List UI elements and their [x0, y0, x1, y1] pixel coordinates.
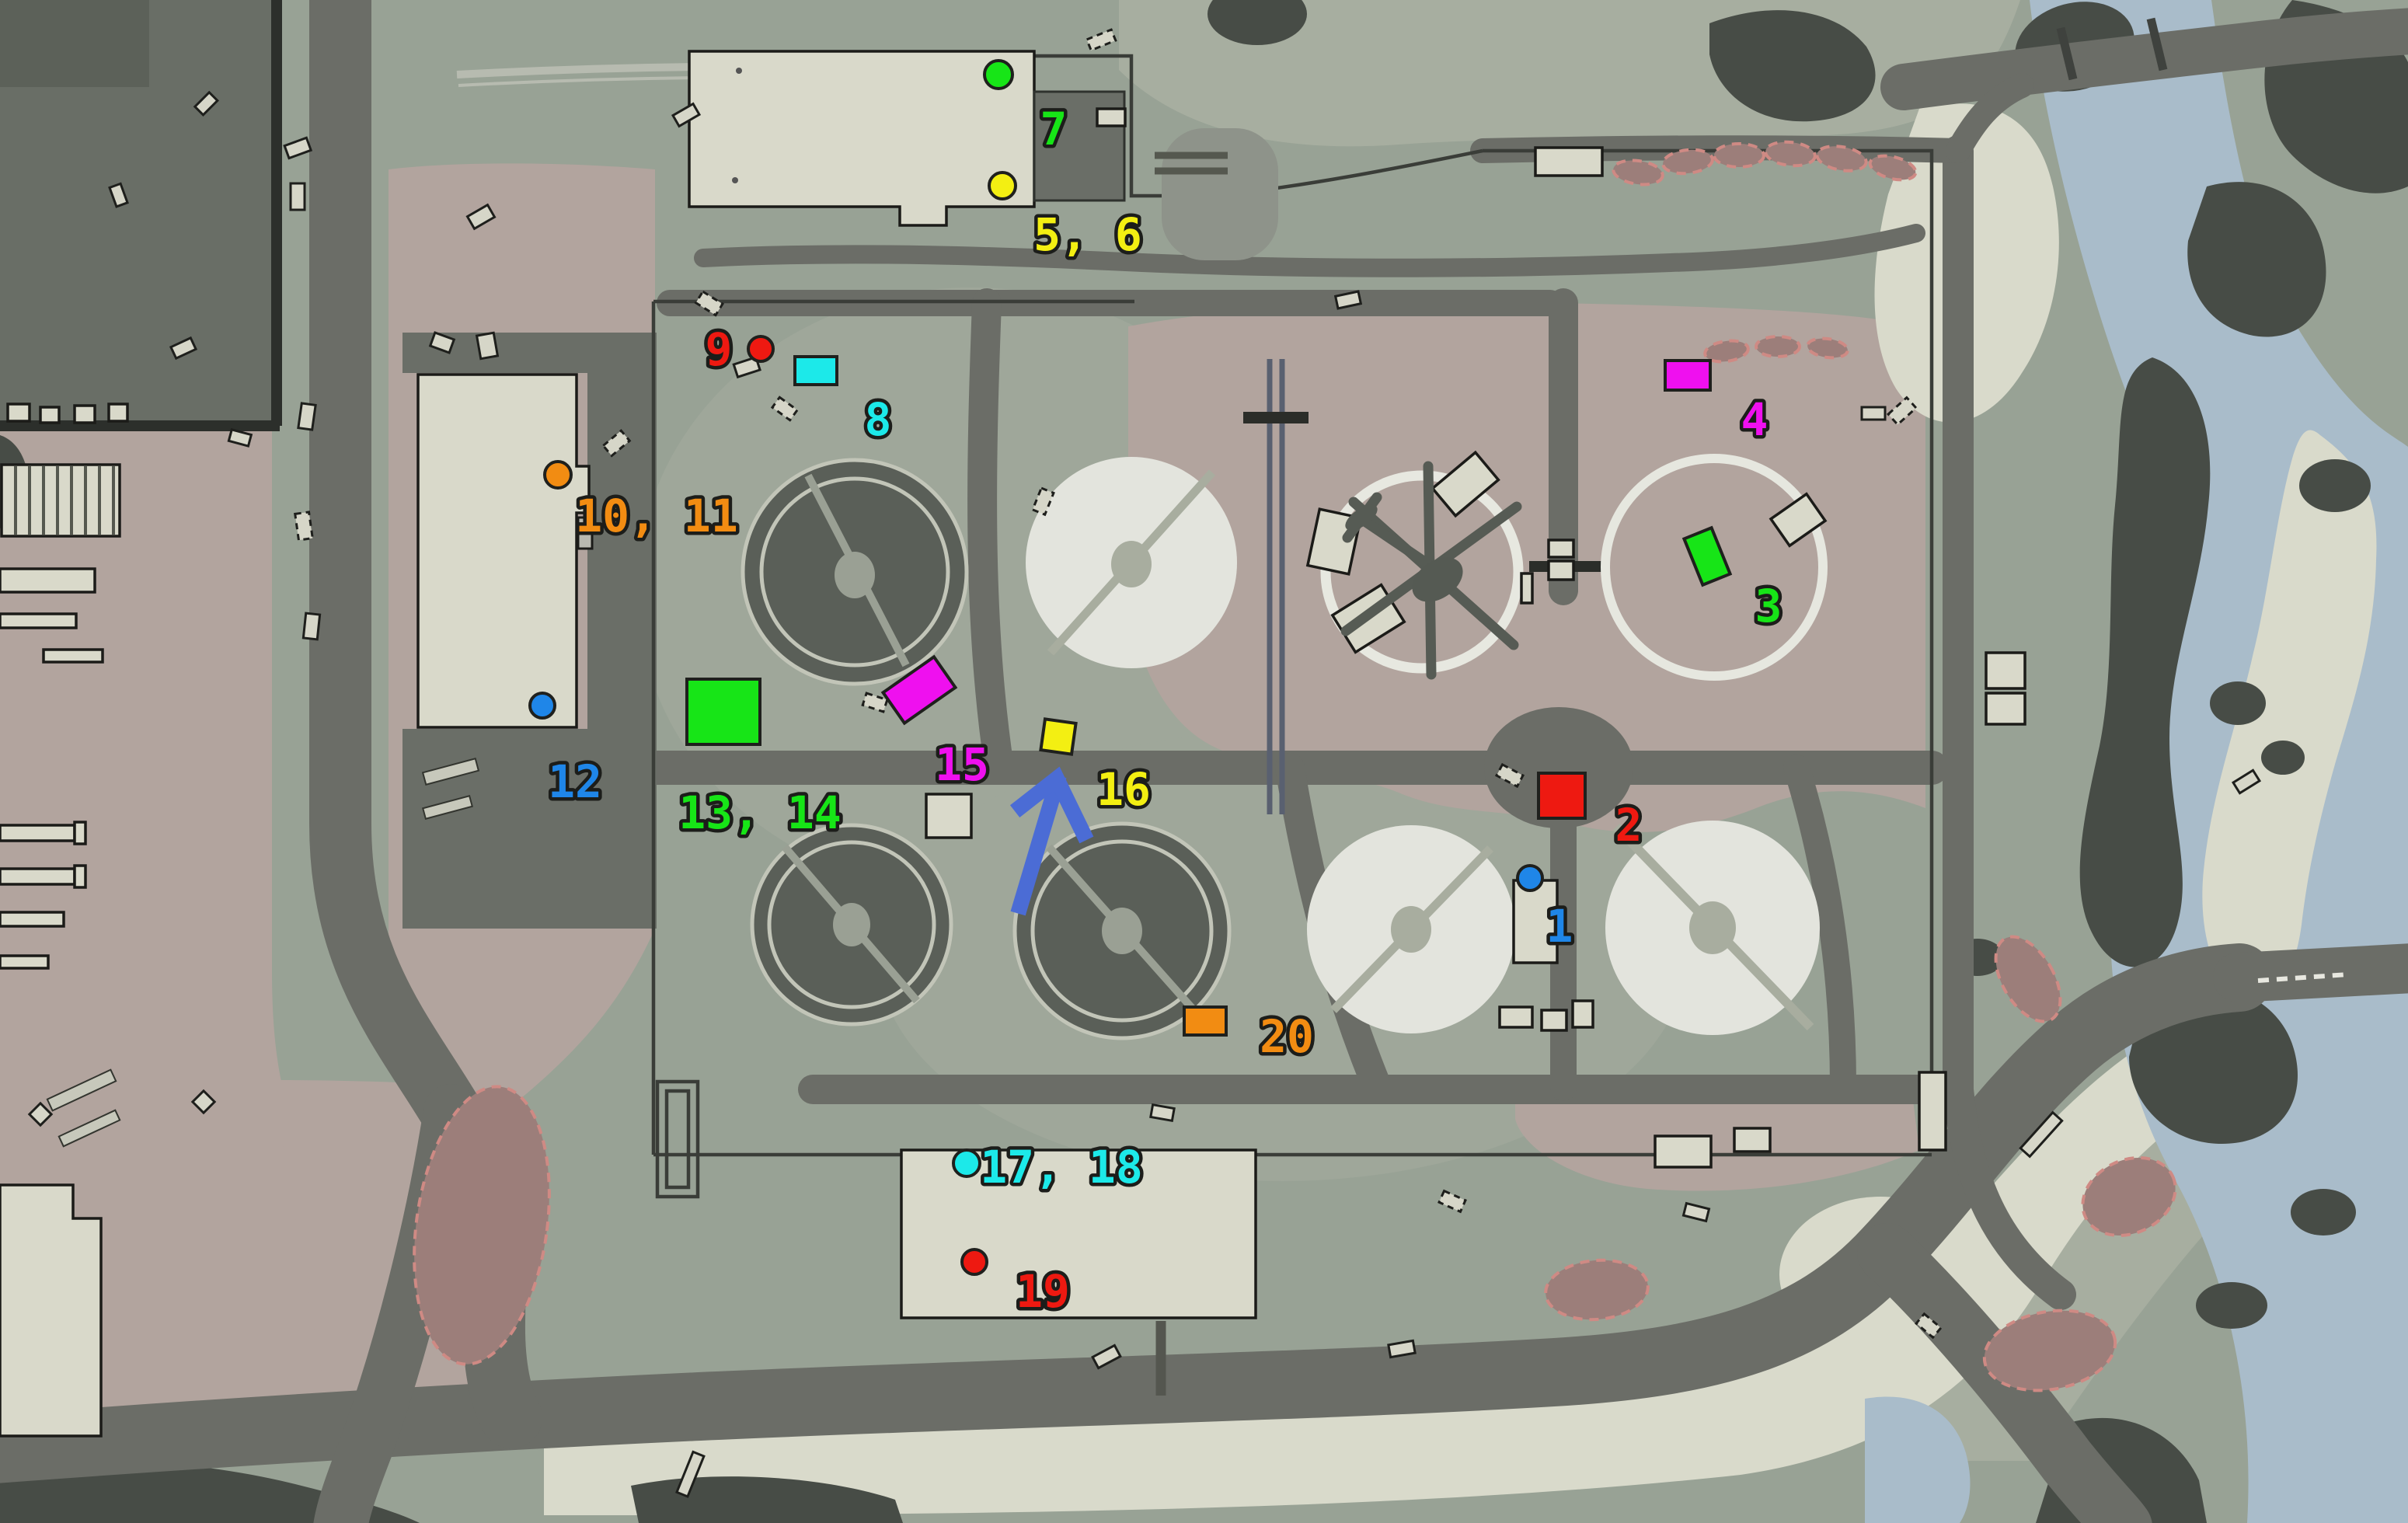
marker-4-label: 4	[1741, 393, 1769, 446]
marker-13-14-label: 13, 14	[678, 786, 842, 839]
marker-9	[748, 336, 773, 361]
marker-1	[1518, 866, 1542, 890]
map-canvas[interactable]: 12345, 678910, 111213, 14151617, 181920	[0, 0, 2408, 1523]
marker-7-label: 7	[1040, 103, 1068, 155]
west-warehouse	[418, 375, 589, 727]
marker-17-18	[953, 1150, 980, 1176]
north-warehouse	[689, 51, 1034, 225]
marker-13-14	[687, 679, 760, 744]
marker-20-label: 20	[1260, 1010, 1314, 1063]
annex-surroundings	[1155, 128, 1278, 260]
map-screenshot: 12345, 678910, 111213, 14151617, 181920	[0, 0, 2408, 1523]
marker-12	[530, 693, 555, 718]
marker-8	[795, 357, 837, 385]
tank-white-se	[1605, 821, 1820, 1035]
marker-19-label: 19	[1016, 1265, 1070, 1318]
marker-12-label: 12	[548, 755, 602, 808]
southwest-building	[0, 1185, 101, 1436]
marker-5-6	[989, 173, 1016, 199]
tank-white-s	[1307, 825, 1515, 1033]
marker-7	[984, 61, 1012, 89]
marker-4	[1665, 361, 1710, 390]
tank-dark-sw	[752, 825, 951, 1024]
marker-15-label: 15	[935, 738, 989, 791]
marker-17-18-label: 17, 18	[980, 1141, 1143, 1194]
marker-1-label: 1	[1546, 900, 1573, 953]
marker-5-6-label: 5, 6	[1033, 208, 1142, 261]
marker-9-label: 9	[706, 323, 733, 376]
marker-3-label: 3	[1755, 580, 1782, 633]
marker-16-label: 16	[1096, 763, 1151, 816]
marker-16	[1040, 719, 1075, 754]
marker-10-11-label: 10, 11	[575, 490, 738, 542]
marker-2-label: 2	[1615, 799, 1643, 852]
marker-2	[1539, 773, 1585, 818]
marker-8-label: 8	[865, 393, 892, 446]
tank-white-n	[1026, 457, 1237, 668]
marker-10-11	[545, 462, 571, 488]
marker-19	[962, 1249, 987, 1274]
marker-20	[1184, 1007, 1226, 1035]
tank-dark-nw	[743, 460, 967, 684]
